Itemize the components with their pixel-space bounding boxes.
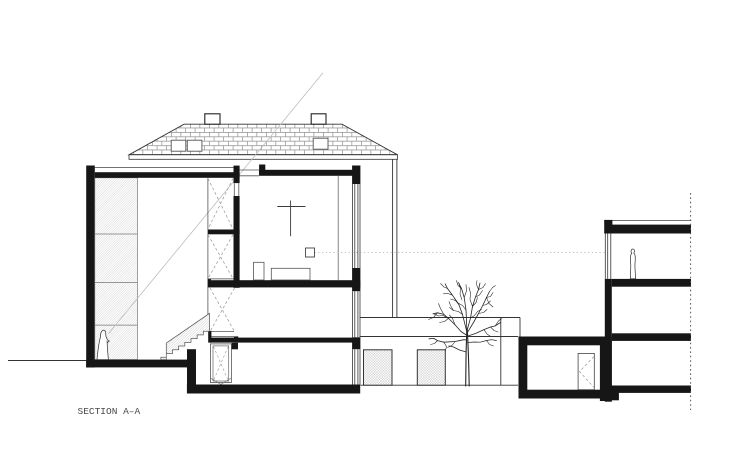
svg-text:SECTION A–A: SECTION A–A <box>78 406 141 417</box>
